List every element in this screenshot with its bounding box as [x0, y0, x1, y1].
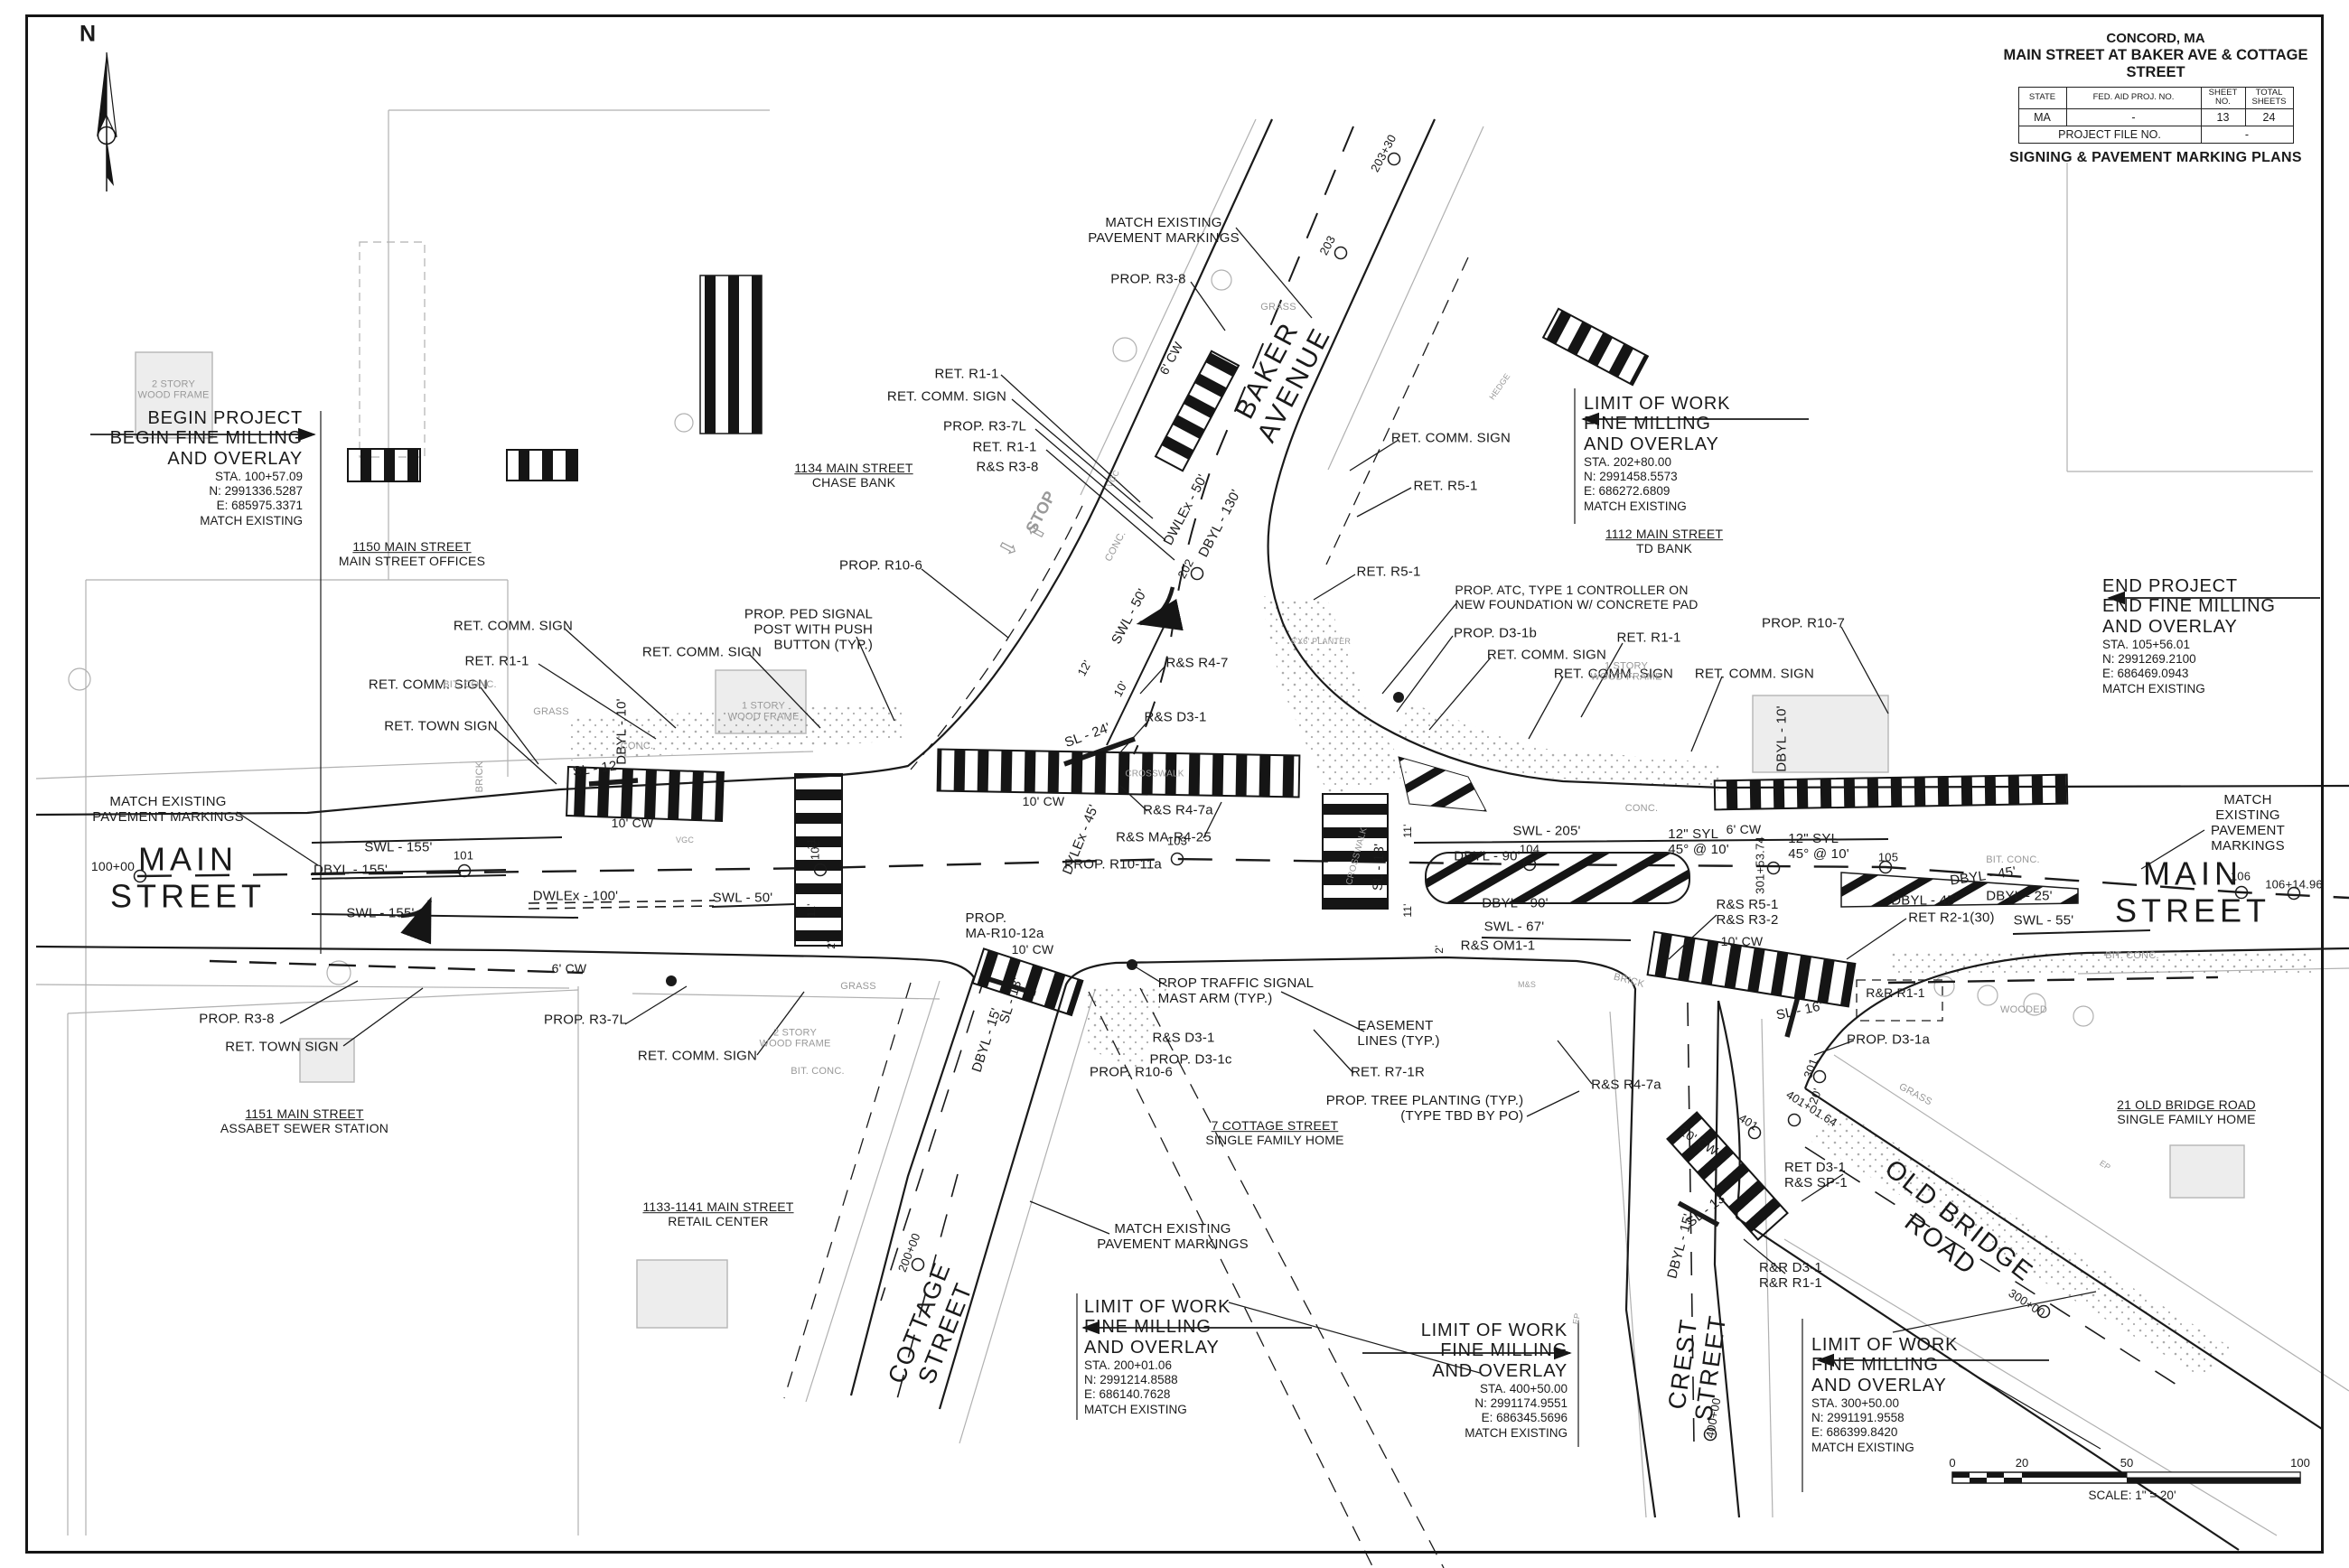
col-fed: FED. AID PROJ. NO. — [2066, 88, 2201, 109]
annotation-label: 1134 MAIN STREETCHASE BANK — [794, 462, 912, 490]
title-table: STATE FED. AID PROJ. NO. SHEET NO. TOTAL… — [2018, 87, 2294, 144]
annotation-label: RET. COMM. SIGN — [1695, 667, 1814, 683]
context-label: GRASS — [533, 706, 569, 717]
annotation-label: PROP. R3-8 — [1110, 273, 1185, 288]
annotation-label: 101 — [454, 850, 473, 863]
annotation-label: 1112 MAIN STREETTD BANK — [1605, 527, 1723, 556]
context-label: GRASS — [840, 981, 876, 992]
annotation-label: RET. COMM. SIGN — [1487, 649, 1606, 664]
annotation-label: SWL - 67' — [1484, 920, 1545, 936]
north-label: N — [80, 22, 96, 48]
annotation-label: PROP. R10-6 — [839, 559, 922, 574]
context-label: 2 STORYWOOD FRAME — [760, 1028, 831, 1050]
annotation-label: RET D3-1R&S SP-1 — [1784, 1161, 1848, 1191]
annotation-label: 7 COTTAGE STREETSINGLE FAMILY HOME — [1205, 1119, 1343, 1148]
annotation-label: 10' CW — [1023, 795, 1065, 809]
annotation-label: R&S R4-7a — [1591, 1078, 1661, 1094]
annotation-label: SL - 13' — [1371, 844, 1389, 891]
annotation-label: MATCH EXISTINGPAVEMENT MARKINGS — [1097, 1222, 1249, 1253]
annotation-label: PROP TRAFFIC SIGNALMAST ARM (TYP.) — [1158, 976, 1314, 1007]
annotation-label: 21 OLD BRIDGE ROADSINGLE FAMILY HOME — [2117, 1098, 2256, 1127]
annotation-label: R&R R1-1 — [1866, 986, 1924, 1001]
context-label: EP — [1571, 1312, 1582, 1325]
annotation-label: R&S R4-7a — [1143, 804, 1213, 819]
title-block: CONCORD, MA MAIN STREET AT BAKER AVE & C… — [1974, 31, 2337, 166]
annotation-label: PROP. D3-1b — [1454, 627, 1537, 642]
annotation-label: DBYL - 155' — [314, 863, 388, 879]
plan-sheet: MATCH EXISTINGPAVEMENT MARKINGSPROP. R3-… — [0, 0, 2349, 1568]
annotation-label: 105 — [1878, 852, 1898, 865]
annotation-label: RET. R1-1 — [973, 441, 1037, 456]
title-city: CONCORD, MA — [1974, 31, 2337, 46]
annotation-label: RET. R1-1 — [1617, 631, 1681, 647]
col-total: TOTAL SHEETS — [2245, 88, 2293, 109]
context-label: 1 STORYWOOD FRAME — [1591, 661, 1662, 684]
annotation-label: MATCH EXISTINGPAVEMENT MARKINGS — [92, 795, 244, 826]
annotation-label: SWL - 155' — [364, 841, 432, 856]
context-label: 1 STORYWOOD FRAME — [728, 701, 800, 723]
col-state: STATE — [2018, 88, 2066, 109]
annotation-label: RET. COMM. SIGN — [887, 390, 1006, 406]
context-label: BIT. CONC. — [2105, 950, 2158, 961]
context-label: BIT. CONC. — [791, 1066, 844, 1077]
context-label: 6'X6' PLANTER — [1291, 637, 1351, 646]
annotation-label: PROP.MA-R10-12a — [965, 911, 1043, 942]
annotation-label: 11' — [806, 903, 819, 917]
annotation-label: PROP. D3-1a — [1847, 1033, 1930, 1049]
annotation-label: 106+14.96 — [2265, 879, 2323, 892]
annotation-label: 12" SYL45° @ 10' — [1668, 827, 1729, 858]
annotation-label: DBYL - 10' — [1775, 705, 1791, 772]
val-sheet: 13 — [2201, 108, 2245, 126]
annotation-label: DBYL - 25' — [1986, 890, 2053, 905]
annotation-label: 10' CW — [1721, 935, 1764, 949]
annotation-label: 6' CW — [552, 962, 587, 976]
annotation-label: MATCH EXISTINGPAVEMENT MARKINGS — [2197, 793, 2298, 854]
context-label: 2 STORYWOOD FRAME — [138, 379, 210, 402]
annotation-label: PROP. R10-6 — [1090, 1066, 1173, 1081]
context-label: WOODED — [2000, 1004, 2047, 1015]
annotation-label: R&S R3-8 — [976, 461, 1038, 476]
annotation-label: RET R2-1(30) — [1908, 911, 1994, 927]
annotation-label: 11' — [806, 835, 819, 849]
annotation-label: 10' CW — [612, 817, 654, 831]
annotation-label: DWLEx - 100' — [533, 890, 618, 905]
annotation-label: PROP. R3-7L — [943, 420, 1026, 435]
annotation-label: PROP. R10-11a — [1064, 858, 1162, 873]
annotation-label: MATCH EXISTINGPAVEMENT MARKINGS — [1088, 216, 1240, 247]
callout-block: LIMIT OF WORKFINE MILLINGAND OVERLAYSTA.… — [1584, 394, 1810, 513]
annotation-label: RET. R7-1R — [1351, 1066, 1425, 1081]
scale-text: SCALE: 1" = 20' — [2088, 1489, 2176, 1502]
callout-block: LIMIT OF WORKFINE MILLINGAND OVERLAYSTA.… — [1346, 1321, 1568, 1440]
annotation-label: 12" SYL45° @ 10' — [1788, 832, 1849, 863]
annotation-label: PROP. ATC, TYPE 1 CONTROLLER ONNEW FOUND… — [1455, 583, 1698, 612]
annotation-label: PROP. TREE PLANTING (TYP.)(TYPE TBD BY P… — [1326, 1094, 1524, 1125]
title-subtitle: SIGNING & PAVEMENT MARKING PLANS — [1974, 150, 2337, 166]
sidewalk-stipple — [571, 596, 2313, 1380]
street-name: MAINSTREET — [2115, 855, 2270, 929]
annotation-label: R&R D3-1R&R R1-1 — [1759, 1261, 1822, 1292]
annotation-label: RET. R5-1 — [1414, 480, 1478, 495]
annotation-label: RET. R1-1 — [465, 655, 529, 670]
annotation-label: DBYL - 90' — [1454, 850, 1521, 865]
annotation-label: SWL - 205' — [1512, 825, 1580, 840]
col-sheet: SHEET NO. — [2201, 88, 2245, 109]
north-arrow-icon — [97, 52, 117, 191]
annotation-label: 2' — [826, 940, 838, 948]
project-file-value: - — [2201, 126, 2293, 143]
scale-bar — [1952, 1472, 2300, 1483]
annotation-label: RET. COMM. SIGN — [1391, 432, 1511, 447]
annotation-label: R&S D3-1 — [1144, 711, 1206, 726]
street-name: MAINSTREET — [110, 841, 266, 914]
context-label: BIT. CONC. — [1986, 854, 2039, 865]
annotation-label: RET. TOWN SIGN — [225, 1041, 339, 1056]
annotation-label: EASEMENTLINES (TYP.) — [1357, 1019, 1439, 1050]
annotation-label: RET. R1-1 — [935, 368, 999, 383]
val-state: MA — [2018, 108, 2066, 126]
annotation-label: 6' CW — [1727, 823, 1762, 837]
annotation-label: R&S R5-1R&S R3-2 — [1716, 898, 1778, 929]
callout-block: END PROJECTEND FINE MILLINGAND OVERLAYST… — [2102, 576, 2324, 695]
annotation-label: SWL - 50' — [713, 891, 773, 907]
project-file-label: PROJECT FILE NO. — [2018, 126, 2201, 143]
val-fed: - — [2066, 108, 2201, 126]
val-total: 24 — [2245, 108, 2293, 126]
annotation-label: R&S D3-1 — [1152, 1031, 1214, 1047]
annotation-label: R&S MA-R4-25 — [1116, 831, 1212, 846]
annotation-label: PROP. R3-7L — [544, 1013, 627, 1029]
annotation-label: DBYL - 10' — [615, 698, 631, 765]
scale-tick-50: 50 — [2120, 1456, 2133, 1470]
title-project: MAIN STREET AT BAKER AVE & COTTAGE STREE… — [1974, 47, 2337, 81]
scale-tick-100: 100 — [2290, 1456, 2310, 1470]
context-label: CONC. — [621, 741, 653, 751]
callout-block: LIMIT OF WORKFINE MILLINGAND OVERLAYSTA.… — [1811, 1335, 2037, 1454]
context-label: CROSSWALK — [1125, 769, 1184, 779]
annotation-label: PROP. R3-8 — [199, 1013, 274, 1028]
annotation-label: RET. R5-1 — [1357, 565, 1421, 581]
annotation-label: PROP. R10-7 — [1762, 617, 1845, 632]
annotation-label: 1151 MAIN STREETASSABET SEWER STATION — [220, 1107, 388, 1136]
annotation-label: R&S OM1-1 — [1461, 939, 1536, 955]
callout-block: LIMIT OF WORKFINE MILLINGAND OVERLAYSTA.… — [1084, 1297, 1310, 1416]
context-label: VGC — [676, 835, 694, 845]
annotation-label: DBYL - 45' — [1891, 894, 1958, 910]
annotation-label: RET. TOWN SIGN — [384, 720, 498, 735]
annotation-label: 104 — [1520, 844, 1539, 857]
annotation-label: SWL - 55' — [2014, 914, 2074, 929]
annotation-label: 11' — [1402, 903, 1415, 917]
annotation-label: RET. COMM. SIGN — [638, 1050, 757, 1065]
annotation-label: R&S R4-7 — [1165, 657, 1228, 672]
context-label: BIT. CONC. — [443, 679, 496, 690]
annotation-label: DBYL - 90' — [1482, 897, 1549, 912]
context-label: BRICK — [474, 761, 485, 793]
annotation-label: 1150 MAIN STREETMAIN STREET OFFICES — [339, 540, 485, 569]
annotation-label: PROP. PED SIGNALPOST WITH PUSHBUTTON (TY… — [744, 608, 873, 654]
context-label: CONC. — [1625, 803, 1658, 814]
annotation-label: 1133-1141 MAIN STREETRETAIL CENTER — [642, 1200, 793, 1229]
callout-block: BEGIN PROJECTBEGIN FINE MILLINGAND OVERL… — [90, 408, 303, 527]
annotation-label: RET. COMM. SIGN — [454, 620, 573, 635]
scale-tick-0: 0 — [1949, 1456, 1955, 1470]
annotation-label: 11' — [1402, 824, 1415, 837]
annotation-label: RET. COMM. SIGN — [642, 646, 762, 661]
annotation-label: 10' CW — [1012, 943, 1054, 957]
context-label: M&S — [1518, 980, 1536, 989]
scale-tick-20: 20 — [2016, 1456, 2028, 1470]
annotation-label: 301+53.74 — [1755, 836, 1768, 894]
annotation-label: 2' — [1434, 945, 1446, 953]
annotation-label: SWL - 155' — [346, 907, 414, 922]
